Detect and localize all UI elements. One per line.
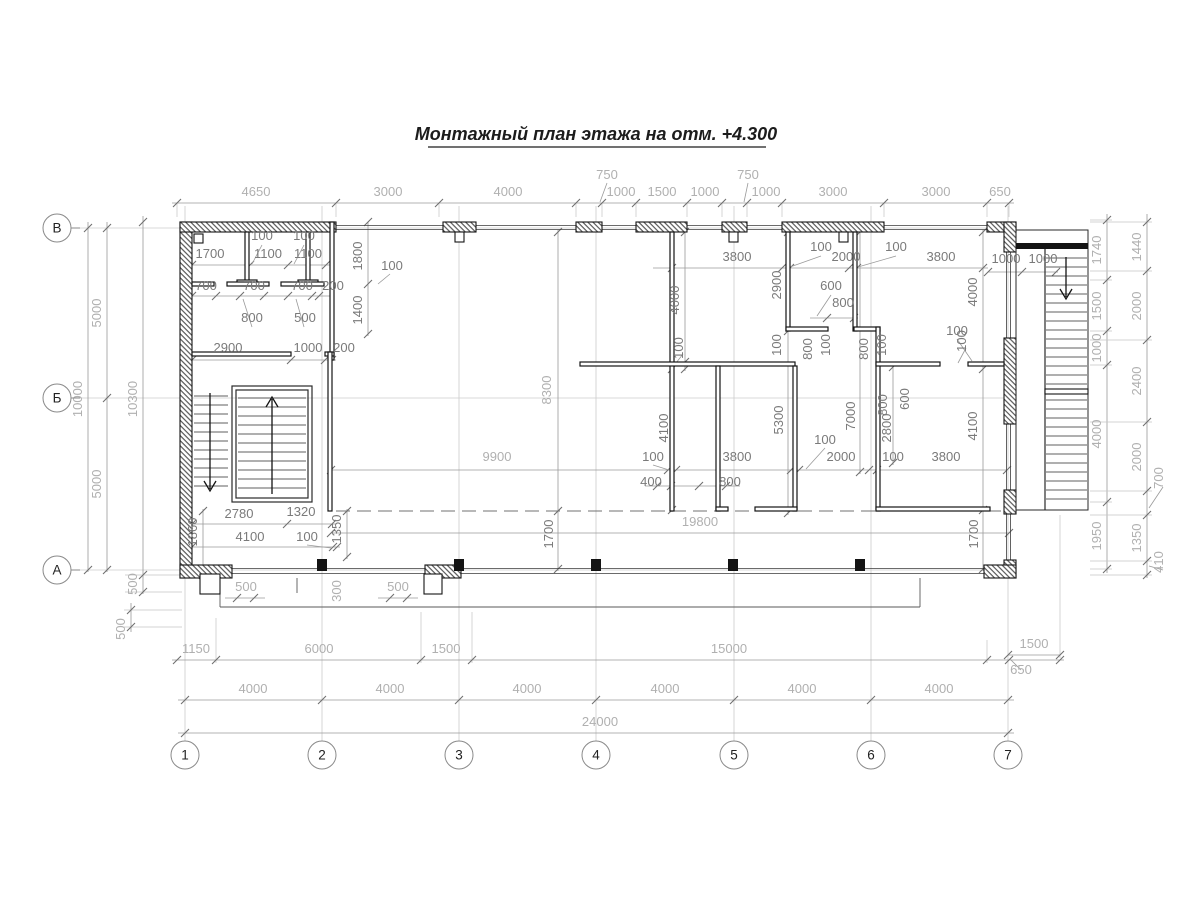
exterior-walls xyxy=(180,222,1016,578)
dim-label: 100 xyxy=(251,228,273,243)
dim-label: 650 xyxy=(1010,662,1032,677)
dim-label: 700 xyxy=(243,278,265,293)
dim-label: 1740 xyxy=(1089,236,1104,265)
dim-label: 4650 xyxy=(242,184,271,199)
dim-label: 1350 xyxy=(329,515,344,544)
dim-label: 100 xyxy=(810,239,832,254)
dim-label: 2000 xyxy=(832,249,861,264)
dim-label: 100 xyxy=(296,529,318,544)
dim-label: 800 xyxy=(832,295,854,310)
dim-label: 9900 xyxy=(483,449,512,464)
dim-label: 600 xyxy=(897,388,912,410)
dim-label: 2000 xyxy=(1129,292,1144,321)
dim-label: 1500 xyxy=(432,641,461,656)
dim-label: 500 xyxy=(387,579,409,594)
axis-bubble-label: 3 xyxy=(455,748,463,763)
dim-label: 800 xyxy=(241,310,263,325)
dim-label: 1500 xyxy=(1089,292,1104,321)
axis-bubble-label: 7 xyxy=(1004,748,1012,763)
dim-label: 4000 xyxy=(1089,420,1104,449)
dim-label: 5000 xyxy=(89,299,104,328)
floor-plan-drawing: Монтажный план этажа на отм. +4.300 xyxy=(0,0,1200,900)
dim-label: 1000 xyxy=(1089,334,1104,363)
dim-label: 100 xyxy=(885,239,907,254)
dim-label: 4000 xyxy=(376,681,405,696)
leader-lines xyxy=(243,183,1163,670)
dim-label: 4100 xyxy=(656,414,671,443)
dim-label: 1400 xyxy=(350,296,365,325)
dim-label: 4000 xyxy=(513,681,542,696)
dim-label: 200 xyxy=(322,278,344,293)
dim-label: 800 xyxy=(800,338,815,360)
drawing-title: Монтажный план этажа на отм. +4.300 xyxy=(415,124,777,144)
dim-label: 4100 xyxy=(965,412,980,441)
dim-label: 800 xyxy=(719,474,741,489)
dim-label: 3000 xyxy=(374,184,403,199)
dim-label: 3000 xyxy=(819,184,848,199)
dim-label: 10000 xyxy=(70,381,85,417)
dim-label: 1700 xyxy=(541,520,556,549)
dim-label: 4000 xyxy=(788,681,817,696)
dim-label: 1150 xyxy=(182,641,210,656)
window-lines xyxy=(232,226,1011,574)
dim-label: 3800 xyxy=(932,449,961,464)
dim-label: 1950 xyxy=(1089,522,1104,551)
dim-label: 1800 xyxy=(350,242,365,271)
dimension-labels: 4650300040007501000150010007501000300030… xyxy=(70,167,1166,729)
dim-label: 500 xyxy=(294,310,316,325)
dim-label: 600 xyxy=(820,278,842,293)
dim-label: 4000 xyxy=(965,278,980,307)
dim-label: 3800 xyxy=(723,249,752,264)
dim-label: 1860 xyxy=(185,518,200,547)
dim-label: 1000 xyxy=(691,184,720,199)
dim-label: 6000 xyxy=(305,641,334,656)
dim-label: 8300 xyxy=(539,376,554,405)
dim-label: 1000 xyxy=(607,184,636,199)
dim-label: 1000 xyxy=(294,340,323,355)
dim-label: 1440 xyxy=(1129,233,1144,262)
dim-label: 2000 xyxy=(827,449,856,464)
dim-label: 7000 xyxy=(843,402,858,431)
dim-label: 300 xyxy=(329,580,344,602)
dim-label: 1000 xyxy=(992,251,1021,266)
porch-outline xyxy=(220,578,920,607)
up-arrow xyxy=(266,397,278,494)
dim-label: 750 xyxy=(737,167,759,182)
dim-label: 100 xyxy=(293,228,315,243)
dim-label: 800 xyxy=(875,394,890,416)
dim-label: 2900 xyxy=(769,271,784,300)
dim-label: 100 xyxy=(671,337,686,359)
dim-label: 24000 xyxy=(582,714,618,729)
dim-label: 1700 xyxy=(196,246,225,261)
axis-bubble-label: 2 xyxy=(318,748,326,763)
dim-label: 1500 xyxy=(648,184,677,199)
dim-label: 1700 xyxy=(966,520,981,549)
dim-label: 3800 xyxy=(723,449,752,464)
dim-label: 3000 xyxy=(922,184,951,199)
dim-label: 700 xyxy=(195,278,217,293)
dim-label: 100 xyxy=(814,432,836,447)
dim-label: 2800 xyxy=(879,414,894,443)
dim-label: 100 xyxy=(874,334,889,356)
dim-label: 1320 xyxy=(287,504,316,519)
dim-label: 3800 xyxy=(927,249,956,264)
axis-bubble-label: Б xyxy=(53,391,62,406)
dim-label: 2400 xyxy=(1129,367,1144,396)
dim-label: 4000 xyxy=(239,681,268,696)
dim-label: 500 xyxy=(235,579,257,594)
dim-label: 410 xyxy=(1151,551,1166,573)
axis-bubble-label: 6 xyxy=(867,748,875,763)
dim-label: 2000 xyxy=(1129,443,1144,472)
dim-label: 1100 xyxy=(294,246,322,261)
dim-label: 5000 xyxy=(89,470,104,499)
dim-label: 100 xyxy=(381,258,403,273)
dim-label: 100 xyxy=(818,334,833,356)
down-arrow xyxy=(204,393,216,491)
dim-label: 2780 xyxy=(225,506,254,521)
axis-bubble-label: В xyxy=(52,221,61,236)
dim-label: 1000 xyxy=(1029,251,1058,266)
dim-label: 750 xyxy=(596,167,618,182)
dim-label: 2900 xyxy=(214,340,243,355)
dim-label: 1100 xyxy=(254,246,282,261)
dim-label: 5300 xyxy=(771,406,786,435)
dim-label: 700 xyxy=(291,278,313,293)
axis-bubble-label: 5 xyxy=(730,748,738,763)
dim-label: 1000 xyxy=(752,184,781,199)
dim-label: 4100 xyxy=(236,529,265,544)
dim-label: 4000 xyxy=(494,184,523,199)
dim-label: 100 xyxy=(642,449,664,464)
dim-label: 500 xyxy=(113,618,128,640)
dim-label: 4000 xyxy=(651,681,680,696)
dim-label: 200 xyxy=(333,340,355,355)
dim-label: 500 xyxy=(125,573,140,595)
dim-label: 4000 xyxy=(667,286,682,315)
dim-label: 700 xyxy=(1151,467,1166,489)
dim-label: 1500 xyxy=(1020,636,1049,651)
down-arrow xyxy=(1060,257,1072,299)
dim-label: 400 xyxy=(640,474,662,489)
right-stair-landing-wall xyxy=(1045,389,1088,394)
dim-label: 100 xyxy=(946,323,968,338)
dim-label: 19800 xyxy=(682,514,718,529)
axis-bubble-label: 1 xyxy=(181,748,189,763)
dim-label: 4000 xyxy=(925,681,954,696)
dim-label: 100 xyxy=(882,449,904,464)
floor-plan-page: Монтажный план этажа на отм. +4.300 xyxy=(0,0,1200,900)
dim-label: 1350 xyxy=(1129,524,1144,553)
dim-label: 100 xyxy=(769,334,784,356)
dim-label: 800 xyxy=(856,338,871,360)
dim-label: 650 xyxy=(989,184,1011,199)
dim-label: 10300 xyxy=(125,381,140,417)
axis-bubble-label: 4 xyxy=(592,748,600,763)
right-stair-top-wall xyxy=(1016,243,1088,249)
dim-label: 15000 xyxy=(711,641,747,656)
axis-bubble-label: А xyxy=(52,563,61,578)
